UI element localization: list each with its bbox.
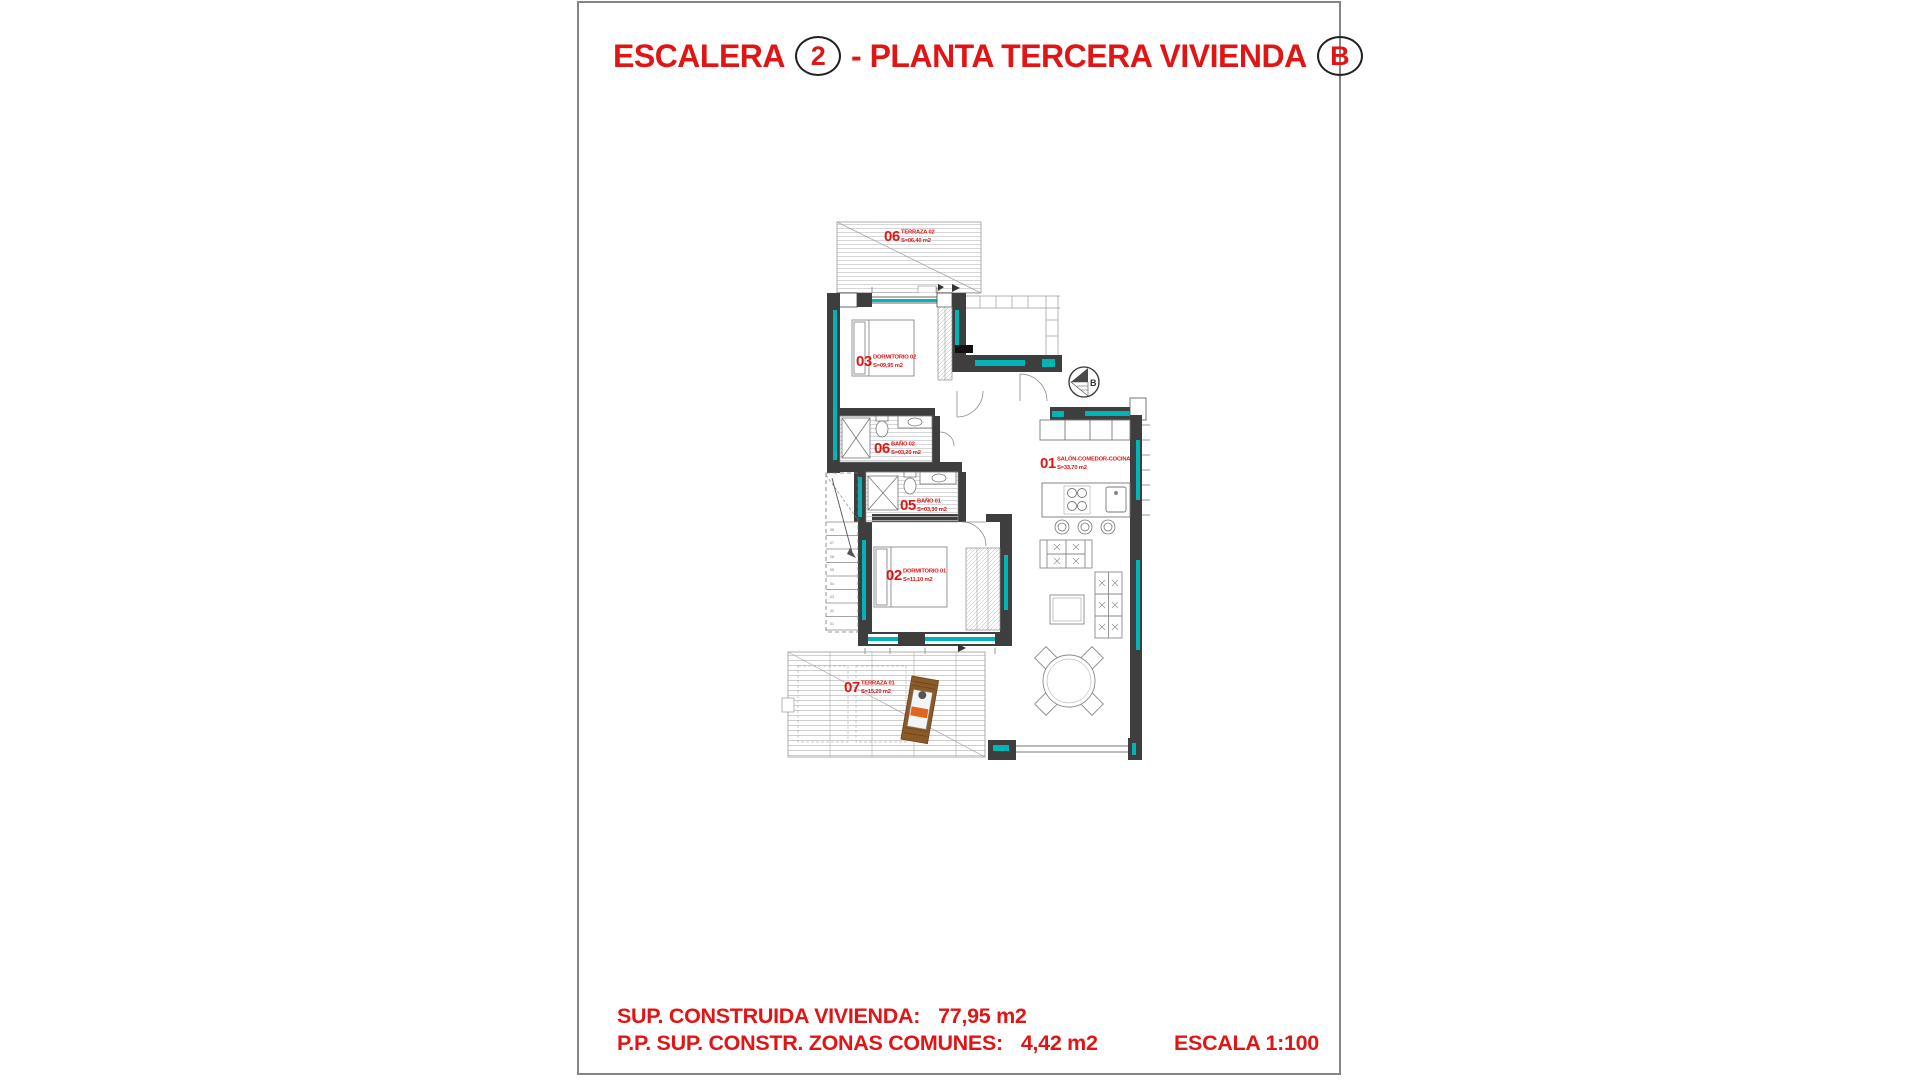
room-name: DORMITORIO 02	[873, 355, 916, 361]
room-number: 02	[886, 567, 902, 584]
entry-door-arc	[1020, 374, 1047, 401]
step-number: 06	[830, 555, 834, 559]
entry-marker: B	[1069, 367, 1099, 397]
floor-plan: 08 07 06 05 04 03 02 01	[775, 200, 1155, 775]
room-name: DORMITORIO 01	[903, 569, 947, 575]
entry-walkway	[966, 296, 1060, 355]
built-area-label: SUP. CONSTRUIDA VIVIENDA:	[617, 1004, 920, 1029]
room-area: S=09,95 m2	[873, 363, 903, 369]
stair-number: 2	[811, 41, 826, 72]
step-number: 01	[830, 622, 834, 626]
duct-box	[955, 345, 973, 353]
bedroom2-door-arc	[957, 391, 983, 417]
terrace-door-threshold	[918, 286, 936, 293]
room-name: SALÓN-COMEDOR-COCINA	[1057, 455, 1131, 463]
stair-number-circle: 2	[795, 36, 841, 76]
room-number: 06	[874, 440, 890, 457]
entry-marker-letter: B	[1090, 378, 1097, 388]
kitchen-counter	[1040, 420, 1130, 440]
bath2-door-arc	[940, 432, 954, 446]
dwelling-letter: B	[1330, 41, 1349, 72]
drawing-sheet: ESCALERA 2 - PLANTA TERCERA VIVIENDA B	[0, 0, 1920, 1080]
step-number: 03	[830, 595, 834, 599]
room-area: S=11,10 m2	[903, 577, 932, 583]
staircase: 08 07 06 05 04 03 02 01	[826, 473, 858, 632]
room-number: 05	[900, 497, 916, 514]
bar-stools	[1055, 520, 1115, 534]
coffee-table	[1050, 595, 1084, 624]
room-area: S=33,70 m2	[1057, 465, 1087, 471]
room-area: S=06,40 m2	[901, 238, 931, 244]
room-name: BAÑO 01	[917, 498, 942, 505]
dining-table	[1043, 655, 1095, 707]
step-number: 07	[830, 541, 834, 545]
wardrobe	[966, 548, 1000, 630]
sofa-chaise	[1095, 572, 1122, 638]
step-number: 02	[830, 609, 834, 613]
room-area: S=03,30 m2	[917, 507, 947, 513]
room-number: 03	[856, 353, 872, 370]
room-number: 06	[884, 228, 900, 245]
scale-text: ESCALA 1:100	[1174, 1031, 1319, 1056]
sink	[932, 474, 946, 482]
title-word-escalera: ESCALERA	[613, 38, 785, 75]
window-glazing	[872, 299, 937, 302]
common-area-label: P.P. SUP. CONSTR. ZONAS COMUNES:	[617, 1031, 1003, 1056]
kitchen-sink	[1106, 487, 1126, 512]
toilet	[904, 478, 916, 494]
toilet-tank	[904, 472, 916, 477]
common-area-value: 4,42 m2	[1021, 1031, 1098, 1056]
built-area-line: SUP. CONSTRUIDA VIVIENDA: 77,95 m2	[617, 1004, 1027, 1029]
room-name: TERRAZA 02	[901, 230, 935, 236]
title-word-planta: - PLANTA TERCERA VIVIENDA	[851, 38, 1307, 75]
sink	[908, 418, 922, 426]
bedroom1-door-arc	[962, 522, 986, 546]
sofa-two-seat	[1040, 540, 1092, 568]
room-area: S=03,20 m2	[891, 450, 921, 456]
stair-direction-arrow	[832, 478, 853, 556]
cooktop	[1064, 486, 1090, 514]
room-area: S=15,20 m2	[861, 689, 891, 695]
room-name: BAÑO 02	[891, 441, 915, 448]
built-area-value: 77,95 m2	[938, 1004, 1026, 1029]
step-number: 04	[830, 582, 834, 586]
bedroom1-furniture	[874, 547, 1000, 630]
toilet	[876, 421, 888, 437]
dwelling-letter-circle: B	[1317, 36, 1363, 76]
room-number: 01	[1040, 455, 1056, 472]
step-number: 05	[830, 568, 834, 572]
scale-label: ESCALA 1:100	[1174, 1031, 1319, 1056]
page-title: ESCALERA 2 - PLANTA TERCERA VIVIENDA B	[613, 36, 1363, 76]
toilet-tank	[876, 416, 888, 421]
terrace-01	[782, 644, 985, 757]
room-name: TERRAZA 01	[861, 681, 896, 687]
dining-set	[1035, 647, 1104, 716]
room-number: 07	[844, 679, 860, 696]
common-area-line: P.P. SUP. CONSTR. ZONAS COMUNES: 4,42 m2	[617, 1031, 1098, 1056]
step-number: 08	[830, 528, 834, 532]
